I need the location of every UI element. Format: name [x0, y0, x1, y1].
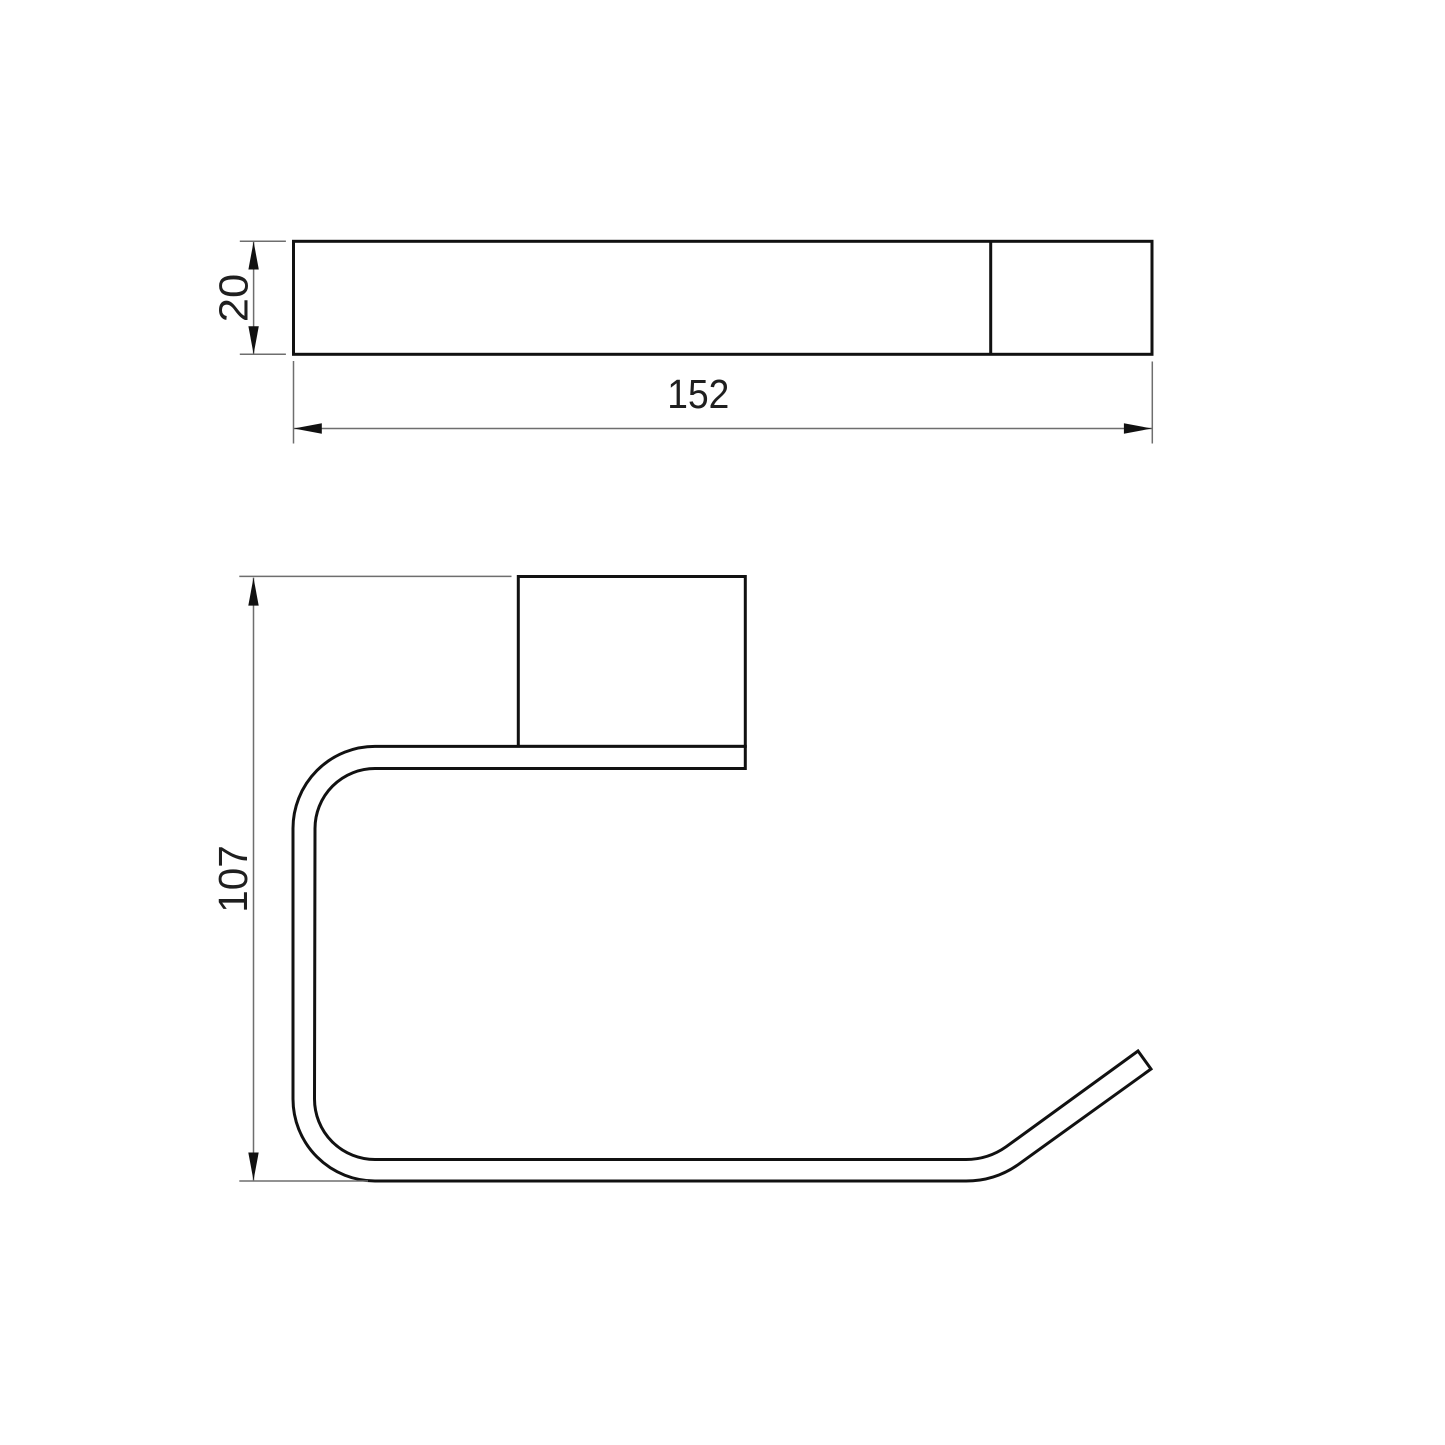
- svg-text:152: 152: [667, 371, 729, 417]
- svg-text:107: 107: [210, 845, 256, 913]
- svg-text:20: 20: [211, 274, 257, 323]
